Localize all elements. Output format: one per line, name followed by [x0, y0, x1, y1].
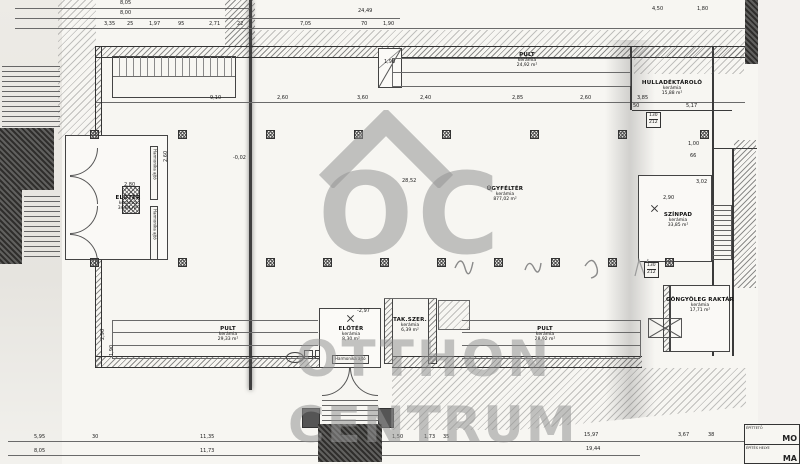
room-label-pult-top: PULTkerámia24,92 m² — [517, 52, 538, 68]
dimension-text: 30 — [92, 435, 98, 440]
room-area: 33,85 m² — [664, 223, 692, 228]
harmonika-door-label: Harmonika ajtó — [332, 355, 369, 364]
dimension-text: 66 — [690, 154, 696, 159]
title-block-value: MA — [783, 454, 797, 463]
dimension-text: 22 — [237, 22, 243, 27]
dimension-text: -0,02 — [233, 156, 246, 161]
door-size-marker: 130212 — [644, 262, 659, 278]
room-area: 17,71 m² — [666, 308, 734, 313]
room-area: 24,92 m² — [517, 63, 538, 68]
column — [530, 130, 539, 139]
dimension-text: 1,90 — [110, 345, 115, 356]
dimension-text: 2,80 — [124, 183, 135, 188]
column — [178, 130, 187, 139]
dimension-text: 2,40 — [420, 96, 431, 101]
harmonika-door-label: Harmonika ajtó — [150, 146, 158, 200]
harmonika-door-label: Harmonika ajtó — [150, 206, 158, 260]
room-label-pult-bottom-left: PULTkerámia29,33 m² — [218, 326, 239, 342]
dimension-text: 5,17 — [686, 104, 697, 109]
dimension-text: 8,05 — [120, 1, 131, 6]
room-area: 29,33 m² — [218, 337, 239, 342]
title-block-row: ÉPÍTTETŐ MO — [745, 425, 799, 445]
dimension-text: 1,00 — [688, 142, 699, 147]
dimension-text: 15,97 — [584, 433, 598, 438]
dimension-text: 24,49 — [358, 9, 372, 14]
dimension-text: 2,85 — [512, 96, 523, 101]
dimension-text: 1,97 — [149, 22, 160, 27]
dimension-text: 8,05 — [34, 449, 45, 454]
title-block-row: ÉPÍTÉS HELYE MA — [745, 445, 799, 464]
title-block-label: ÉPÍTTETŐ — [746, 426, 763, 430]
dimension-text: 2,90 — [101, 329, 106, 340]
dimension-text: 5,95 — [34, 435, 45, 440]
column — [618, 130, 627, 139]
room-label-ugyfelter: ÜGYFÉLTÉRkerámia877,02 m² — [487, 186, 524, 202]
dimension-text: 95 — [178, 22, 184, 27]
dimension-text: 2,90 — [663, 196, 674, 201]
dimension-text: 25 — [127, 22, 133, 27]
column — [665, 258, 674, 267]
room-label-pult-bottom-right: PULTkerámia28,92 m² — [535, 326, 556, 342]
column — [380, 258, 389, 267]
dimension-text: 3,85 — [637, 96, 648, 101]
dimension-text: 2,71 — [209, 22, 220, 27]
room-label-gongyoleg-raktar: GÖNGYÖLEG RAKTÁRkerámia17,71 m² — [666, 297, 734, 313]
dimension-text: 2,60 — [580, 96, 591, 101]
dimension-text: 50 — [633, 104, 639, 109]
dimension-text: 3,02 — [696, 180, 707, 185]
column — [90, 130, 99, 139]
generated-layer: ELŐTÉRkerámia34,84 m²ÜGYFÉLTÉRkerámia877… — [0, 0, 800, 464]
room-area: 28,92 m² — [535, 337, 556, 342]
room-label-szinpad: SZÍNPADkerámia33,85 m² — [664, 212, 692, 228]
column — [266, 258, 275, 267]
room-label-hulladektarolo: HULLADÉKTÁROLÓkerámia15,88 m² — [642, 80, 702, 96]
dimension-text: 1,50 — [392, 435, 403, 440]
column — [266, 130, 275, 139]
dimension-text: 1,98 — [384, 60, 395, 65]
dimension-text: 11,73 — [200, 449, 214, 454]
room-label-eloter-bottom: ELŐTÉRkerámia8,30 m² — [339, 326, 364, 342]
pencil-marks — [440, 248, 660, 288]
dimension-text: 8,00 — [120, 11, 131, 16]
dimension-text: 3,67 — [678, 433, 689, 438]
dimension-text: 19,44 — [586, 447, 600, 452]
dimension-text: 1,80 — [697, 7, 708, 12]
title-block-value: MO — [782, 434, 797, 443]
dimension-text: 70 — [361, 22, 367, 27]
dimension-text: 3,35 — [104, 22, 115, 27]
title-block: ÉPÍTTETŐ MO ÉPÍTÉS HELYE MA — [744, 424, 800, 464]
room-area: 34,84 m² — [116, 206, 141, 211]
dimension-text: 4,50 — [652, 7, 663, 12]
column — [90, 258, 99, 267]
room-label-eloter-left: ELŐTÉRkerámia34,84 m² — [116, 195, 141, 211]
floor-plan-scan: Harmonika ajtó Harmonika ajtó Harmonika … — [0, 0, 800, 464]
dimension-text: 2,60 — [164, 151, 169, 162]
dimension-text: 35 — [443, 435, 449, 440]
dimension-text: 38 — [708, 433, 714, 438]
dimension-text: 11,35 — [200, 435, 214, 440]
column — [700, 130, 709, 139]
room-area: 877,02 m² — [487, 197, 524, 202]
dimension-text: 3,60 — [357, 96, 368, 101]
door-size-marker: 130212 — [646, 112, 661, 128]
room-area: 8,30 m² — [339, 337, 364, 342]
dimension-text: 1,90 — [383, 22, 394, 27]
dimension-text: 1,73 — [424, 435, 435, 440]
title-block-label: ÉPÍTÉS HELYE — [746, 446, 770, 450]
room-label-takszer: TAK.SZER.kerámia6,39 m² — [393, 317, 427, 333]
dimension-text: -2,97 — [357, 309, 370, 314]
watermark-roof-icon — [318, 110, 454, 188]
room-area: 15,88 m² — [642, 91, 702, 96]
dimension-text: 7,05 — [300, 22, 311, 27]
column — [178, 258, 187, 267]
room-area: 6,39 m² — [393, 328, 427, 333]
dimension-text: 9,10 — [210, 96, 221, 101]
dimension-text: 2,60 — [277, 96, 288, 101]
column — [323, 258, 332, 267]
